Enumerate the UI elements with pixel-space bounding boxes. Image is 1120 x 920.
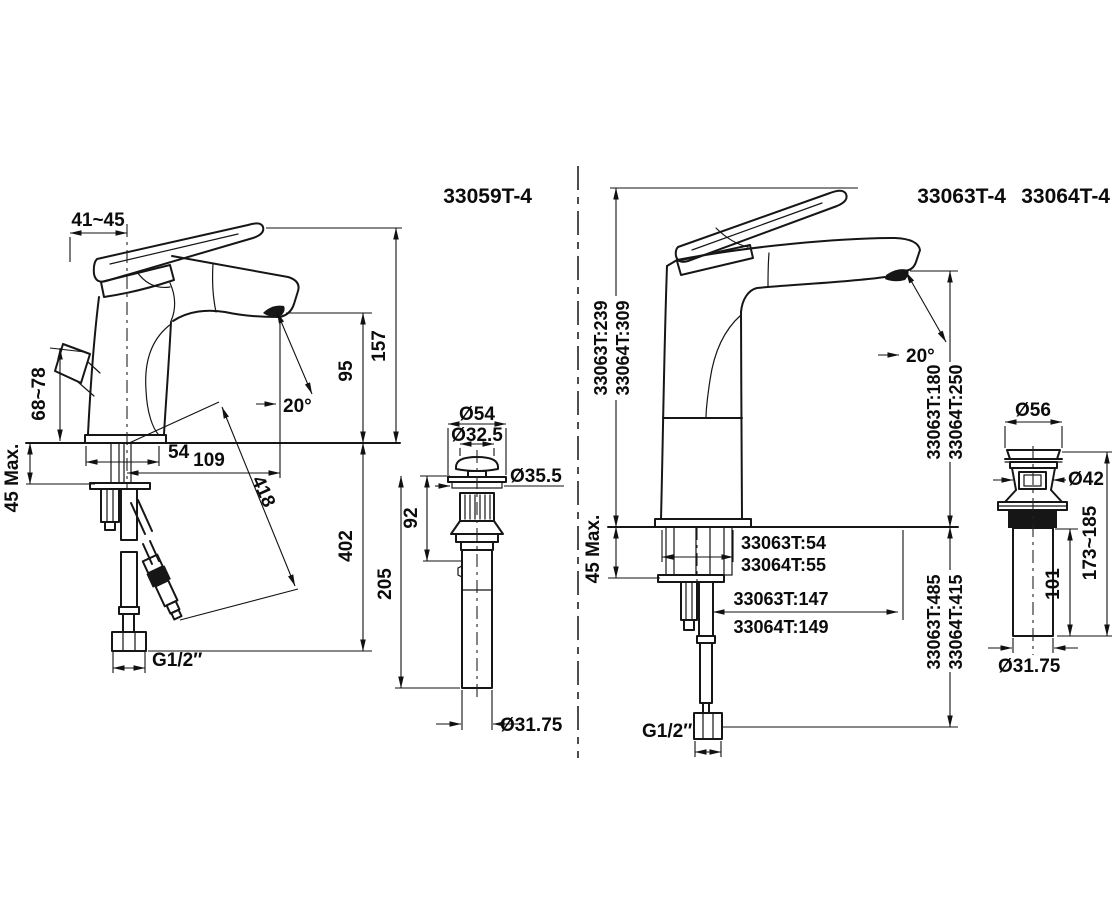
dim-top-width: 41~45	[71, 210, 125, 231]
right-dimensions: 33063T:239 33064T:309 45 Max. 20° 33063T…	[583, 188, 966, 757]
dim-spray-angle: 20°	[283, 396, 312, 417]
dim-spout-reach-a: 33063T:147	[733, 589, 828, 609]
dim-spout-height: 95	[336, 360, 357, 382]
dim-spray-angle-right: 20°	[906, 346, 935, 367]
dim-spout-reach: 109	[193, 450, 225, 471]
right-drain: Ø56 Ø42 173~185 101 Ø31.75	[988, 400, 1112, 677]
dim-right-drain-body: Ø42	[1068, 469, 1104, 490]
dim-base-width-b: 33064T:55	[741, 555, 826, 575]
dim-inlet-thread-right: G1/2″	[642, 721, 692, 742]
hose-connector	[141, 554, 187, 622]
dim-right-drain-tailpiece: Ø31.75	[998, 656, 1061, 677]
dim-spout-reach-b: 33064T:149	[733, 617, 828, 637]
dim-spout-height-b: 33064T:250	[946, 364, 966, 459]
dim-inlet-thread: G1/2″	[152, 650, 202, 671]
dim-right-drain-tail-length: 101	[1043, 568, 1064, 600]
dim-drain-body-length: 92	[401, 507, 422, 528]
left-view: 33059T-4	[2, 185, 564, 736]
dim-side-handle-height: 68~78	[29, 367, 50, 420]
dim-below-deck-a: 33063T:485	[924, 574, 944, 669]
right-title-b: 33064T-4	[1021, 185, 1110, 208]
dim-spout-height-a: 33063T:180	[924, 364, 944, 459]
dim-overall-height-a: 33063T:239	[591, 300, 611, 395]
left-dimensions: 41~45 68~78 45 Max. 157 95 20° 402	[2, 210, 402, 673]
left-title: 33059T-4	[443, 185, 532, 208]
dim-below-deck-b: 33064T:415	[946, 574, 966, 669]
technical-drawing: 33059T-4	[0, 0, 1120, 920]
dim-drain-cap: Ø54	[459, 404, 495, 425]
right-faucet	[655, 191, 920, 527]
dim-hose-length: 418	[247, 473, 279, 511]
dim-drain-plug: Ø32.5	[451, 425, 503, 446]
dim-right-drain-cap: Ø56	[1015, 400, 1051, 421]
dim-drain-flange: Ø35.5	[510, 466, 562, 487]
dim-overall-height-b: 33064T:309	[613, 300, 633, 395]
dim-overall-height: 157	[369, 330, 390, 362]
dim-deck-thickness: 45 Max.	[2, 444, 23, 513]
dim-drain-tailpiece: Ø31.75	[500, 715, 563, 736]
right-view: 33063T-4 33064T-4	[583, 185, 1112, 757]
dim-base-width: 54	[168, 442, 190, 463]
dim-base-width-a: 33063T:54	[741, 533, 826, 553]
left-drain: Ø54 Ø32.5 Ø35.5 92 205 Ø31.75	[375, 404, 564, 736]
dim-drain-overall-length: 205	[375, 568, 396, 600]
dim-below-deck-depth: 402	[336, 530, 357, 562]
right-title-a: 33063T-4	[917, 185, 1006, 208]
dim-right-drain-overall: 173~185	[1080, 505, 1101, 580]
drawing-canvas: 33059T-4	[0, 0, 1120, 920]
dim-deck-thickness-right: 45 Max.	[583, 515, 604, 584]
